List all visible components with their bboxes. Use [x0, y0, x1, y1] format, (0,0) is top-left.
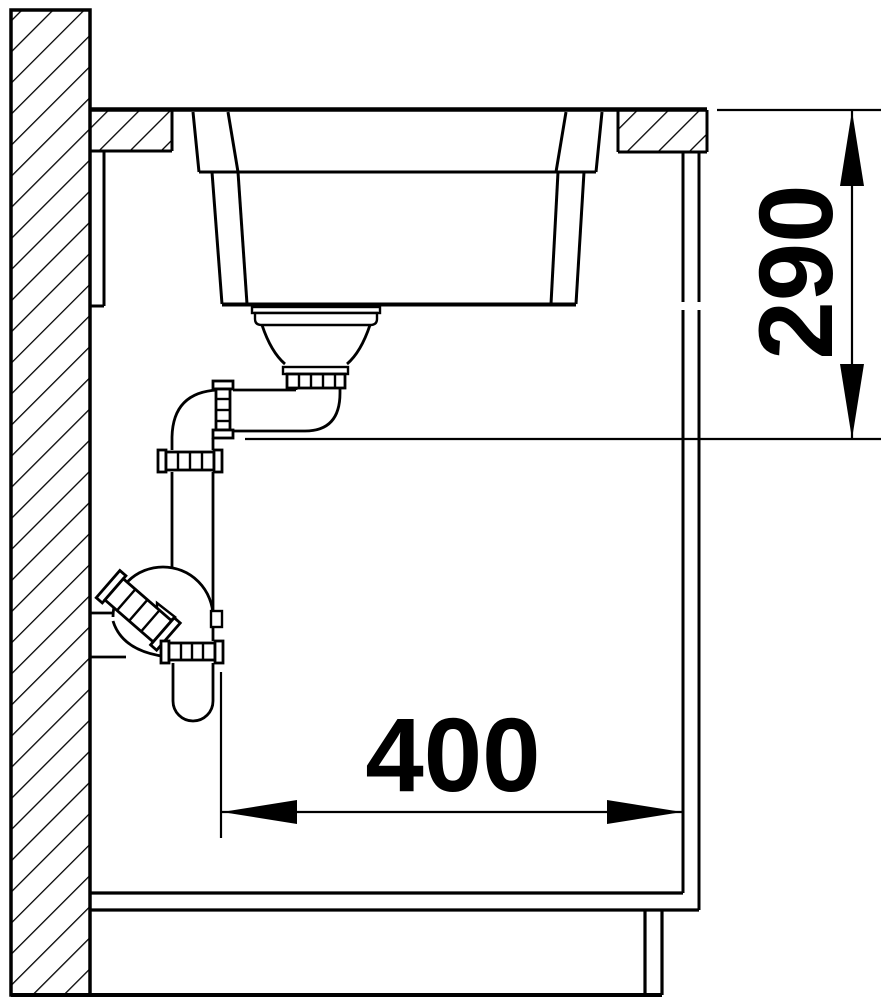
- tailpipe-elbow: [172, 387, 340, 450]
- trap-cup: [173, 663, 213, 721]
- cabinet-side-panel: [683, 152, 699, 910]
- standpipe-union-nut: [158, 450, 222, 472]
- standpipe: [172, 472, 213, 641]
- wall-hatch: [11, 10, 90, 995]
- countertop-right: [618, 110, 707, 152]
- arrow-right-icon: [607, 800, 682, 824]
- sink-wall-left-outer: [212, 172, 222, 304]
- cabinet-plinth: [645, 910, 662, 995]
- sink-wall-left-inner: [238, 172, 247, 304]
- countertop-left: [90, 110, 172, 151]
- sink-rim-left-outer: [193, 112, 199, 172]
- trap-cup-nut: [161, 641, 223, 663]
- sink-rim-right-inner: [556, 112, 566, 172]
- trap-side-tab: [211, 611, 222, 627]
- wall-batten: [90, 151, 104, 306]
- drain-strainer-assembly: [252, 307, 380, 364]
- drain-locknut: [283, 367, 348, 388]
- sink-bowl: [193, 112, 602, 305]
- elbow-union-nut: [213, 381, 233, 438]
- dimension-value-horizontal: 400: [365, 697, 540, 814]
- cabinet-bottom-shelf: [90, 893, 699, 910]
- sink-installation-cross-section: 290 400: [0, 0, 891, 1000]
- drain-funnel-left: [262, 325, 285, 364]
- drain-funnel-right: [347, 325, 370, 364]
- sink-wall-right-outer: [576, 172, 584, 304]
- arrow-down-icon: [840, 364, 864, 439]
- dimension-400: 400: [221, 672, 682, 838]
- arrow-up-icon: [840, 111, 864, 186]
- sink-rim-right-outer: [596, 112, 602, 172]
- drain-flange-lower: [255, 313, 377, 325]
- wall-section: [11, 10, 90, 995]
- technical-drawing-page: 290 400: [0, 0, 891, 1000]
- sink-rim-left-inner: [228, 112, 238, 172]
- dimension-value-vertical: 290: [738, 184, 855, 359]
- sink-wall-right-inner: [551, 172, 558, 304]
- arrow-left-icon: [222, 800, 297, 824]
